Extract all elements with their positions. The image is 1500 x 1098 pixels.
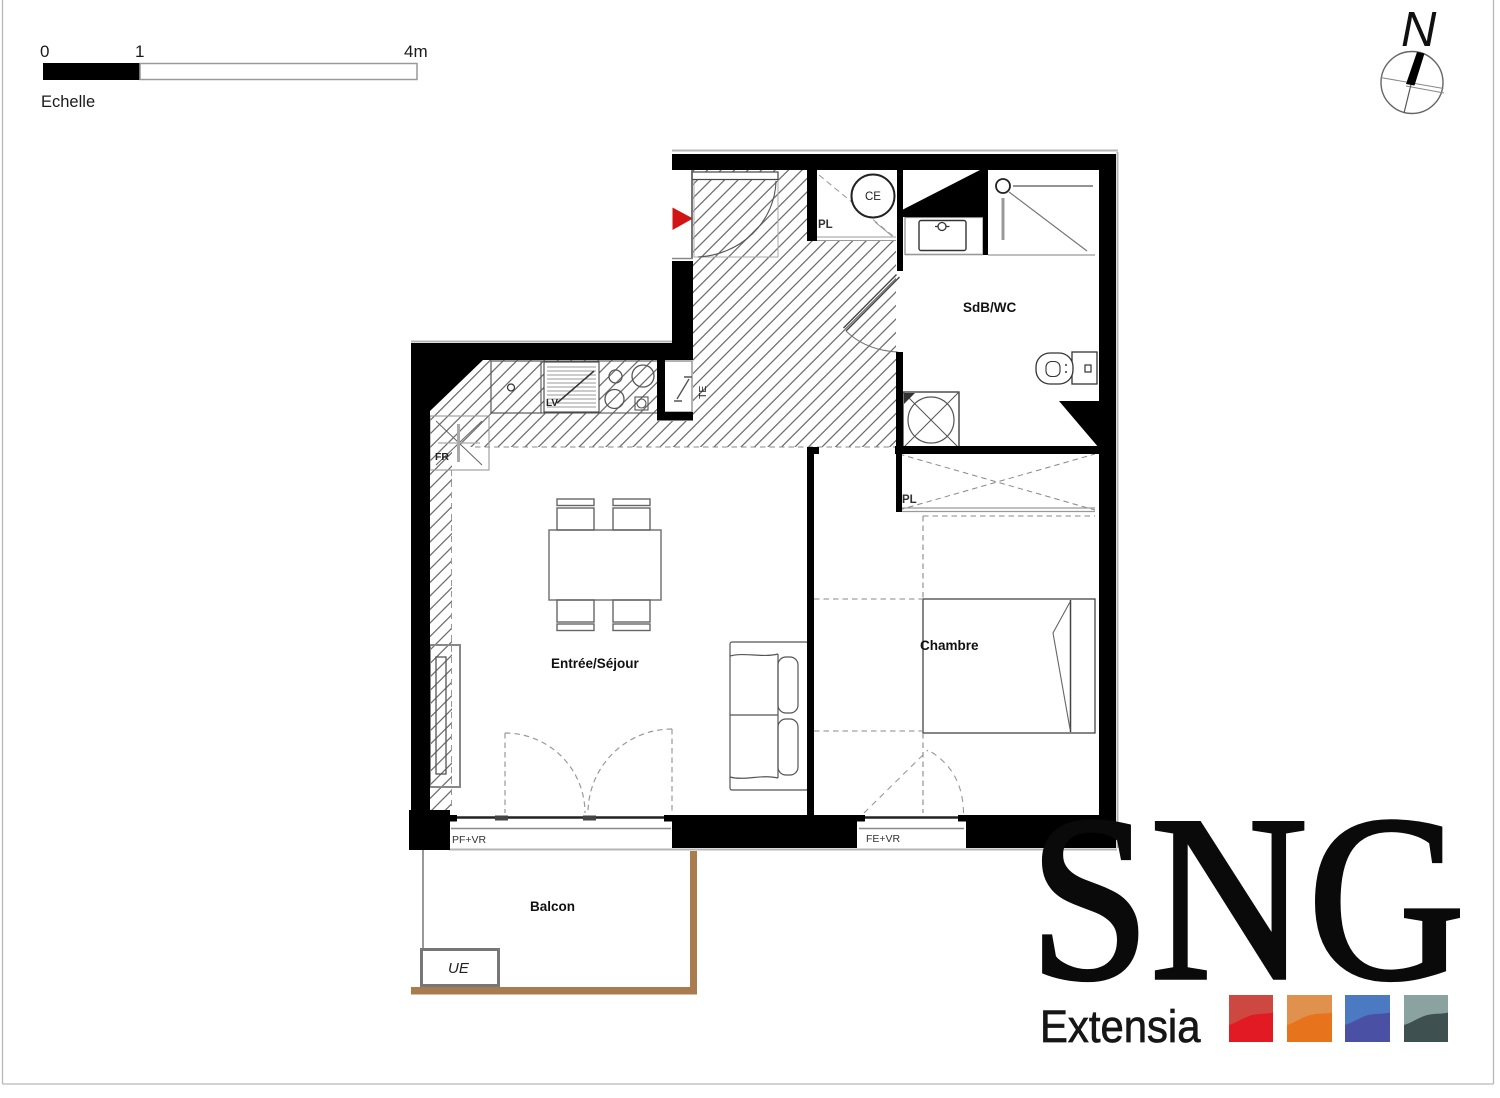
- svg-text:SNG: SNG: [1029, 768, 1465, 1030]
- svg-text:Echelle: Echelle: [41, 93, 95, 111]
- svg-text:PF+VR: PF+VR: [452, 834, 487, 846]
- svg-text:FR: FR: [435, 451, 449, 463]
- svg-text:FE+VR: FE+VR: [866, 833, 901, 845]
- svg-text:PL: PL: [902, 494, 917, 506]
- svg-text:PL: PL: [818, 219, 833, 231]
- svg-text:Balcon: Balcon: [530, 899, 575, 914]
- svg-text:SdB/WC: SdB/WC: [963, 300, 1016, 315]
- svg-text:1: 1: [135, 42, 144, 61]
- svg-text:Entrée/Séjour: Entrée/Séjour: [551, 656, 640, 671]
- svg-text:UE: UE: [448, 960, 470, 977]
- svg-text:Extensia: Extensia: [1040, 1003, 1201, 1053]
- svg-text:4m: 4m: [404, 42, 428, 61]
- svg-text:CE: CE: [865, 191, 881, 203]
- svg-text:N: N: [1401, 3, 1437, 57]
- svg-text:TE: TE: [697, 386, 709, 399]
- svg-text:0: 0: [40, 42, 49, 61]
- svg-text:LV: LV: [546, 398, 558, 409]
- svg-text:Chambre: Chambre: [920, 638, 979, 653]
